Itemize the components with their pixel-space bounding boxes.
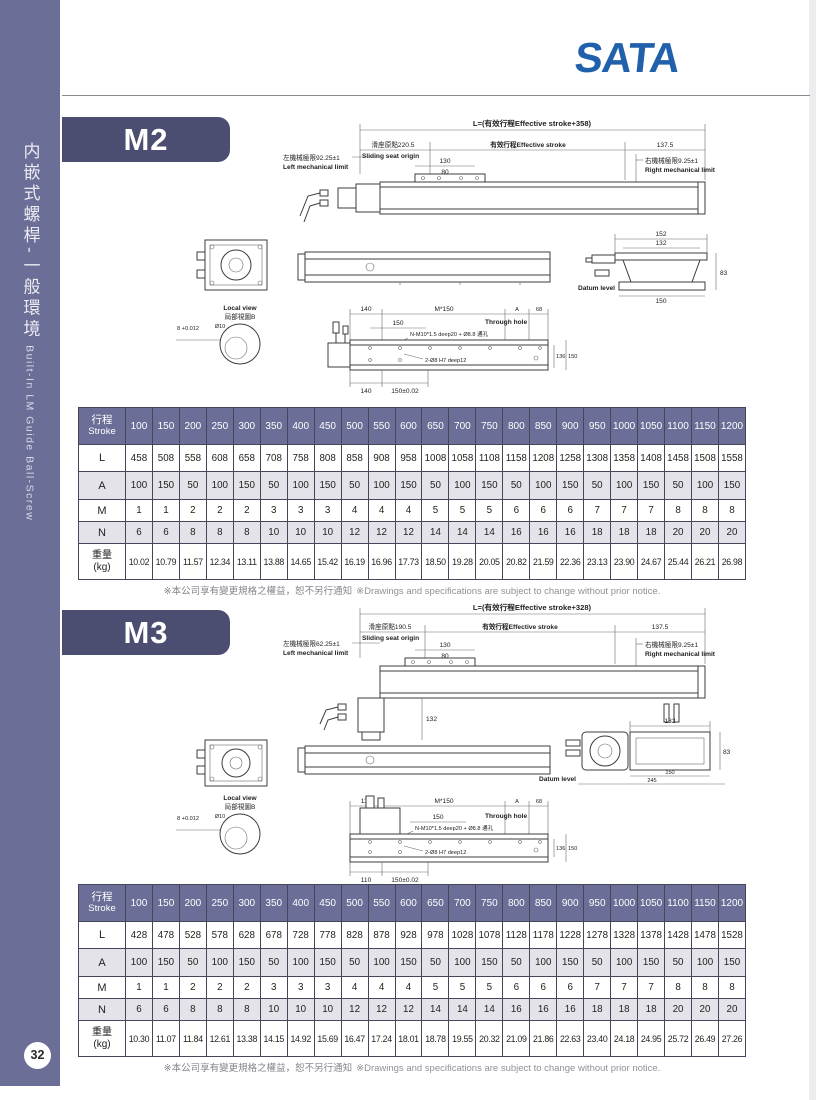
table-row: L458508558608658708758808858908958100810… [79,445,746,472]
stroke-value: 500 [341,885,368,922]
stroke-value: 750 [476,408,503,445]
m3-cs-150: 150 [665,770,674,776]
cell: 458 [126,445,153,472]
cell: 150 [314,472,341,500]
cell: 150 [233,949,260,977]
m2-note: ※本公司享有變更規格之權益，恕不另行通知※Drawings and specif… [78,583,746,597]
cell: 10 [287,522,314,544]
row-label: M [79,977,126,999]
cell: 11.84 [179,1021,206,1057]
m3-h-150: 150 [568,846,577,852]
cell: 13.38 [233,1021,260,1057]
m3-bottom-150: 150±0.02 [391,877,419,884]
cell: 25.72 [665,1021,692,1057]
cell: 8 [692,977,719,999]
cell: 1528 [718,922,745,949]
cell: 14 [476,999,503,1021]
m3-plan-a: A [515,799,519,805]
table-row: M11222333444555666777888 [79,977,746,999]
cell: 24.95 [638,1021,665,1057]
cell: 1508 [692,445,719,472]
cell: 3 [260,500,287,522]
cell: 17.73 [395,544,422,580]
cell: 1 [126,500,153,522]
cell: 3 [260,977,287,999]
m2-h-150: 150 [568,354,577,360]
cell: 100 [287,949,314,977]
cell: 100 [449,949,476,977]
cell: 1328 [611,922,638,949]
cell: 1308 [584,445,611,472]
cell: 708 [260,445,287,472]
m2-end-view [197,240,267,290]
stroke-value: 950 [584,885,611,922]
cell: 16 [530,999,557,1021]
cell: 8 [179,522,206,544]
stroke-value: 300 [233,885,260,922]
m2-h-136: 136 [556,354,565,360]
cell: 12 [368,999,395,1021]
cell: 1278 [584,922,611,949]
cell: 100 [368,949,395,977]
page-edge [809,0,816,1100]
cell: 16 [503,522,530,544]
cell: 18 [611,522,638,544]
cell: 14 [449,999,476,1021]
cell: 8 [718,500,745,522]
cell: 8 [206,522,233,544]
cell: 1028 [449,922,476,949]
m3-left-limit-zh: 左機械極限62.25±1 [283,639,340,648]
cell: 2 [206,500,233,522]
cell: 10 [314,522,341,544]
cell: 50 [503,949,530,977]
cell: 10.30 [126,1021,153,1057]
cell: 558 [179,445,206,472]
cell: 15.42 [314,544,341,580]
m3-dim-origin-zh: 滑座原點190.5 [369,622,412,631]
cell: 12 [395,999,422,1021]
cell: 12 [395,522,422,544]
cell: 7 [611,500,638,522]
m2-plan-150: 150 [392,320,403,327]
sidebar-title-zh: 内嵌式螺桿-一般環境 [21,142,40,341]
row-label: L [79,445,126,472]
row-label: 重量(kg) [79,544,126,580]
cell: 1 [152,977,179,999]
cell: 50 [341,472,368,500]
cell: 1558 [718,445,745,472]
cell: 6 [503,500,530,522]
cell: 2 [179,500,206,522]
m2-origin-en: Sliding seat origin [362,153,419,160]
m3-technical-drawing: L=(有效行程Effective stroke+328) 滑座原點190.5 有… [70,600,760,884]
cell: 100 [206,949,233,977]
cell: 26.21 [692,544,719,580]
cell: 20 [718,522,745,544]
cell: 26.98 [718,544,745,580]
cell: 150 [557,472,584,500]
cell: 1058 [449,445,476,472]
stroke-value: 150 [152,885,179,922]
cell: 478 [152,922,179,949]
stroke-value: 1050 [638,885,665,922]
cell: 6 [530,500,557,522]
cell: 10 [260,999,287,1021]
cell: 4 [341,500,368,522]
cell: 21.59 [530,544,557,580]
cell: 27.26 [718,1021,745,1057]
cell: 11.57 [179,544,206,580]
stroke-value: 1100 [665,885,692,922]
cell: 658 [233,445,260,472]
cell: 1428 [665,922,692,949]
m3-right-limit-en: Right mechanical limit [645,651,716,658]
m3-h-136: 136 [556,846,565,852]
m2-plan-68: 68 [536,307,542,313]
stroke-value: 300 [233,408,260,445]
stroke-value: 450 [314,408,341,445]
m3-elevation-view: L=(有效行程Effective stroke+328) 滑座原點190.5 有… [283,602,716,740]
cell: 7 [638,977,665,999]
cell: 4 [395,500,422,522]
cell: 19.55 [449,1021,476,1057]
cell: 16.47 [341,1021,368,1057]
cell: 7 [584,500,611,522]
cell: 100 [206,472,233,500]
row-label: N [79,522,126,544]
m2-note-zh: ※本公司享有變更規格之權益，恕不另行通知 [164,586,352,597]
stroke-value: 1100 [665,408,692,445]
m3-cs-132: 132 [664,718,675,725]
stroke-value: 750 [476,885,503,922]
m2-plan-pitch: M*150 [434,306,453,313]
m3-plan-68: 68 [536,799,542,805]
cell: 608 [206,445,233,472]
cell: 14 [422,999,449,1021]
m3-plan-150: 150 [432,814,443,821]
m2-spec-table: 行程Stroke10015020025030035040045050055060… [78,407,746,580]
row-label: 重量(kg) [79,1021,126,1057]
cell: 100 [530,949,557,977]
sidebar-title-en: Built-In LM Guide Ball-Screw [24,345,36,521]
cell: 428 [126,922,153,949]
cell: 50 [584,949,611,977]
cell: 6 [557,977,584,999]
stroke-value: 200 [179,408,206,445]
cell: 1378 [638,922,665,949]
stroke-value: 250 [206,408,233,445]
cell: 8 [692,500,719,522]
m3-dim-130: 130 [439,642,450,649]
cell: 14.15 [260,1021,287,1057]
cell: 150 [395,949,422,977]
cell: 20 [692,522,719,544]
cell: 6 [126,999,153,1021]
m3-dim-total: L=(有效行程Effective stroke+328) [473,602,592,612]
cell: 18.78 [422,1021,449,1057]
cell: 14 [422,522,449,544]
cell: 10.79 [152,544,179,580]
cell: 4 [368,500,395,522]
m2-plan-140: 140 [360,306,371,313]
cell: 50 [179,472,206,500]
cell: 8 [179,999,206,1021]
stroke-value: 500 [341,408,368,445]
cell: 150 [718,472,745,500]
cell: 10.02 [126,544,153,580]
cell: 15.69 [314,1021,341,1057]
cell: 628 [233,922,260,949]
cell: 12 [341,522,368,544]
cell: 20.32 [476,1021,503,1057]
cell: 20.82 [503,544,530,580]
cell: 3 [287,500,314,522]
stroke-value: 450 [314,885,341,922]
cell: 50 [422,472,449,500]
stroke-value: 250 [206,885,233,922]
stroke-value: 650 [422,885,449,922]
cell: 1358 [611,445,638,472]
cell: 16.19 [341,544,368,580]
cell: 3 [314,977,341,999]
sidebar-title: 内嵌式螺桿-一般環境 Built-In LM Guide Ball-Screw [0,142,60,521]
cell: 1258 [557,445,584,472]
cell: 18.50 [422,544,449,580]
table-row: A100150501001505010015050100150501001505… [79,472,746,500]
cell: 4 [395,977,422,999]
cell: 50 [422,949,449,977]
cell: 150 [233,472,260,500]
cell: 7 [611,977,638,999]
cell: 578 [206,922,233,949]
m2-cs-152: 152 [655,231,666,238]
cell: 24.18 [611,1021,638,1057]
cell: 3 [314,500,341,522]
m3-bottom-110: 110 [361,877,372,884]
cell: 50 [665,472,692,500]
stroke-value: 350 [260,885,287,922]
stroke-value: 900 [557,885,584,922]
m3-note-en: ※Drawings and specifications are subject… [356,1063,660,1074]
cell: 8 [718,977,745,999]
cell: 12 [368,522,395,544]
cell: 8 [665,500,692,522]
stroke-value: 400 [287,885,314,922]
cell: 23.90 [611,544,638,580]
cell: 1458 [665,445,692,472]
stroke-value: 650 [422,408,449,445]
cell: 100 [126,472,153,500]
cell: 50 [341,949,368,977]
cell: 8 [233,999,260,1021]
cell: 21.86 [530,1021,557,1057]
cell: 858 [341,445,368,472]
row-label: A [79,472,126,500]
m3-local-view: Local view 局部視圖B 8 +0.012 Ø10 [176,795,260,854]
m3-left-limit-en: Left mechanical limit [283,650,349,657]
stroke-value: 700 [449,885,476,922]
cell: 11.07 [152,1021,179,1057]
cell: 6 [557,500,584,522]
cell: 2 [233,500,260,522]
cell: 150 [476,949,503,977]
m2-technical-drawing: L=(有效行程Effective stroke+358) 滑座原點220.5 有… [70,112,760,402]
m2-bore-dim: 8 +0.012 [177,326,199,332]
m3-cross-section: 132 83 150 245 Datum level [539,704,731,784]
cell: 6 [530,977,557,999]
cell: 150 [152,949,179,977]
table-row: 重量(kg)10.3011.0711.8412.6113.3814.1514.9… [79,1021,746,1057]
cell: 1208 [530,445,557,472]
m3-dim-end-offset: 137.5 [652,624,669,631]
stroke-value: 800 [503,408,530,445]
cell: 778 [314,922,341,949]
cell: 150 [314,949,341,977]
m2-side-view [298,252,550,285]
cell: 100 [126,949,153,977]
cell: 16 [503,999,530,1021]
cell: 13.11 [233,544,260,580]
row-label: N [79,999,126,1021]
cell: 50 [503,472,530,500]
stroke-value: 550 [368,408,395,445]
m3-dim-effective: 有效行程Effective stroke [482,622,558,631]
cell: 908 [368,445,395,472]
stroke-value: 1000 [611,408,638,445]
cell: 758 [287,445,314,472]
cell: 20 [718,999,745,1021]
cell: 22.36 [557,544,584,580]
cell: 1008 [422,445,449,472]
cell: 18 [584,999,611,1021]
stroke-value: 1150 [692,408,719,445]
m2-dim-end-offset: 137.5 [657,142,674,149]
cell: 100 [530,472,557,500]
cell: 958 [395,445,422,472]
cell: 1078 [476,922,503,949]
m3-cbore-dim: Ø10 [215,814,226,820]
cell: 17.24 [368,1021,395,1057]
cell: 18.01 [395,1021,422,1057]
stroke-value: 1200 [718,408,745,445]
catalog-page: 内嵌式螺桿-一般環境 Built-In LM Guide Ball-Screw … [0,0,816,1100]
cell: 1 [152,500,179,522]
table-row: 重量(kg)10.0210.7911.5712.3413.1113.8814.6… [79,544,746,580]
cell: 50 [260,949,287,977]
m2-screw-note: N-M10*1.5 deep20 + Ø8.8 通孔 [410,330,489,338]
m2-through-hole: Through hole [485,319,527,326]
stroke-value: 600 [395,408,422,445]
cell: 7 [638,500,665,522]
m3-note-zh: ※本公司享有變更規格之權益，恕不另行通知 [164,1063,352,1074]
cell: 150 [476,472,503,500]
row-label: A [79,949,126,977]
m3-cs-245: 245 [647,778,656,784]
cell: 14.92 [287,1021,314,1057]
m2-local-view-en: Local view [223,305,257,312]
cell: 7 [584,977,611,999]
cell: 20 [665,999,692,1021]
m2-datum-label: Datum level [578,285,615,292]
m2-left-limit-en: Left mechanical limit [283,164,349,171]
cell: 5 [449,977,476,999]
cell: 1 [126,977,153,999]
cell: 150 [557,949,584,977]
cell: 10 [260,522,287,544]
cell: 6 [503,977,530,999]
cell: 50 [665,949,692,977]
header-rule [62,95,810,96]
cell: 23.13 [584,544,611,580]
cell: 1128 [503,922,530,949]
m3-screw-note: N-M10*1.5 deep20 + Ø8.8 通孔 [415,824,494,832]
cell: 50 [260,472,287,500]
cell: 1228 [557,922,584,949]
cell: 50 [584,472,611,500]
m3-side-view [298,746,550,774]
m2-cross-section: 152 132 83 150 Datum level [578,231,728,305]
m2-local-view: Local view 局部視圖B 8 +0.012 Ø10 [176,305,260,364]
m3-plan-view: 110 M*150 A 68 Through hole 150 N-M10*1.… [350,796,577,884]
stroke-value: 350 [260,408,287,445]
m3-dim-132v: 132 [426,716,437,723]
cell: 18 [584,522,611,544]
cell: 5 [422,500,449,522]
m3-note: ※本公司享有變更規格之權益，恕不另行通知※Drawings and specif… [78,1060,746,1074]
cell: 10 [314,999,341,1021]
cell: 150 [718,949,745,977]
stroke-value: 1000 [611,885,638,922]
cell: 100 [449,472,476,500]
cell: 1178 [530,922,557,949]
cell: 2 [206,977,233,999]
stroke-value: 1200 [718,885,745,922]
cell: 12.34 [206,544,233,580]
row-label: M [79,500,126,522]
stroke-value: 850 [530,408,557,445]
m3-right-limit-zh: 右機械極限9.25±1 [645,640,698,649]
stroke-value: 1050 [638,408,665,445]
m2-dim-effective: 有效行程Effective stroke [490,140,566,149]
stroke-value: 900 [557,408,584,445]
cell: 878 [368,922,395,949]
cell: 16 [557,999,584,1021]
m2-bottom-140: 140 [360,388,371,395]
cell: 6 [152,999,179,1021]
stroke-value: 700 [449,408,476,445]
cell: 26.49 [692,1021,719,1057]
cell: 20 [692,999,719,1021]
cell: 978 [422,922,449,949]
stroke-value: 400 [287,408,314,445]
sidebar: 内嵌式螺桿-一般環境 Built-In LM Guide Ball-Screw … [0,0,60,1086]
m2-cs-132: 132 [655,240,666,247]
m2-bottom-150: 150±0.02 [391,388,419,395]
cell: 22.63 [557,1021,584,1057]
cell: 1108 [476,445,503,472]
cell: 12 [341,999,368,1021]
table-row: N668881010101212121414141616161818182020… [79,522,746,544]
m3-plan-pitch: M*150 [434,798,453,805]
cell: 24.67 [638,544,665,580]
cell: 14 [449,522,476,544]
cell: 728 [287,922,314,949]
cell: 100 [692,949,719,977]
m3-end-view [197,740,267,786]
stroke-value: 850 [530,885,557,922]
table-row: M11222333444555666777888 [79,500,746,522]
